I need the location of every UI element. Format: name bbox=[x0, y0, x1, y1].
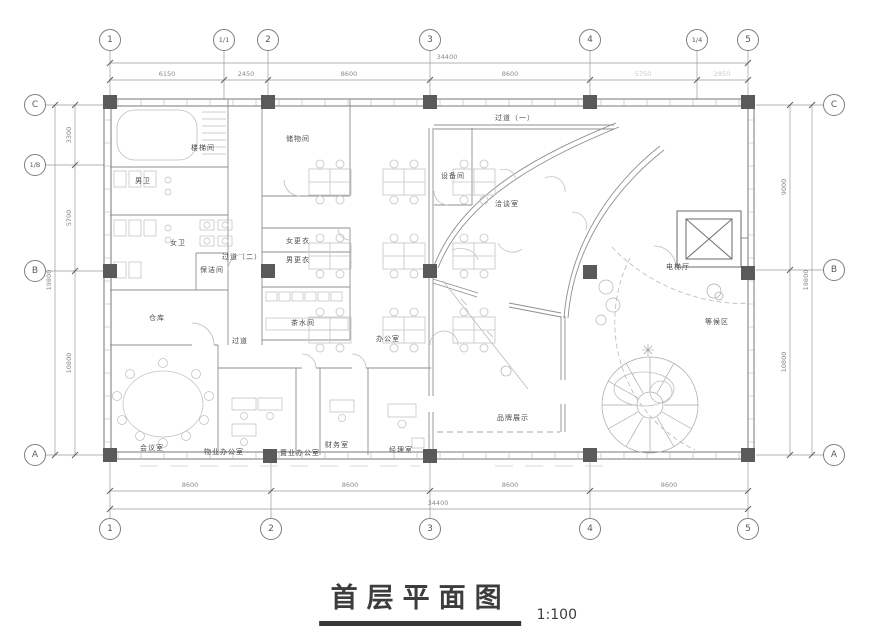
room-label-negotiation: 洽谈室 bbox=[495, 199, 519, 209]
grid-bubble-right-b: B bbox=[823, 259, 845, 281]
room-label-sales-office: 置业办公室 bbox=[280, 448, 320, 458]
plant-symbol bbox=[707, 284, 723, 300]
room-label-elevator-hall: 电梯厅 bbox=[666, 262, 690, 272]
room-label-corridor1: 过道（一） bbox=[495, 113, 535, 123]
floor-plan-drawing bbox=[0, 0, 875, 644]
leader-line bbox=[443, 281, 528, 389]
room-label-meeting: 会议室 bbox=[140, 443, 164, 453]
star-symbol bbox=[642, 344, 654, 356]
title-block: 首层平面图 1:100 bbox=[319, 576, 577, 626]
grid-bubble-bottom-2: 2 bbox=[260, 518, 282, 540]
dim-top-seg-6: 2850 bbox=[714, 70, 731, 78]
room-label-cleaning: 保洁间 bbox=[200, 265, 224, 275]
open-office-workstations bbox=[309, 160, 495, 352]
grid-bubble-bottom-5: 5 bbox=[737, 518, 759, 540]
grid-bubble-top-2: 2 bbox=[257, 29, 279, 51]
dimension-ticks bbox=[52, 60, 815, 512]
room-label-warehouse: 仓库 bbox=[149, 313, 165, 323]
dim-top-seg-1: 6150 bbox=[159, 70, 176, 78]
window-mullions bbox=[104, 99, 755, 459]
room-label-storage: 储物间 bbox=[286, 134, 310, 144]
dim-bottom-overall: 34400 bbox=[428, 499, 449, 507]
dashed-curves bbox=[612, 247, 748, 450]
room-label-pantry: 茶水间 bbox=[291, 318, 315, 328]
grid-bubble-left-c: C bbox=[24, 94, 46, 116]
room-label-waiting: 等候区 bbox=[705, 317, 729, 327]
dim-top-seg-4: 8600 bbox=[502, 70, 519, 78]
dim-right-seg-2: 10800 bbox=[780, 352, 788, 373]
dim-top-overall: 34400 bbox=[437, 53, 458, 61]
dim-left-seg-2: 5700 bbox=[65, 210, 73, 227]
floor-plan-sheet: 1 1/1 2 3 4 1/4 5 1 2 3 4 5 C 1/B B A C … bbox=[0, 0, 875, 644]
room-label-men-change: 男更衣 bbox=[286, 255, 310, 265]
grid-bubble-right-c: C bbox=[823, 94, 845, 116]
grid-bubble-top-3: 3 bbox=[419, 29, 441, 51]
room-label-stair: 楼梯间 bbox=[191, 143, 215, 153]
grid-bubble-bottom-3: 3 bbox=[419, 518, 441, 540]
grid-bubble-left-b: B bbox=[24, 260, 46, 282]
reception-desk bbox=[614, 372, 674, 406]
elevator-shaft bbox=[677, 211, 741, 267]
dim-left-seg-3: 10800 bbox=[65, 353, 73, 374]
dim-left-seg-1: 3300 bbox=[65, 127, 73, 144]
drawing-scale: 1:100 bbox=[537, 607, 577, 626]
dim-right-overall: 19800 bbox=[802, 270, 810, 291]
grid-bubble-top-5: 5 bbox=[737, 29, 759, 51]
dim-top-seg-2: 2450 bbox=[238, 70, 255, 78]
grid-bubble-top-1-1: 1/1 bbox=[213, 29, 235, 51]
grid-bubble-top-1: 1 bbox=[99, 29, 121, 51]
dim-right-seg-1: 9000 bbox=[780, 179, 788, 196]
dim-bottom-seg-1: 8600 bbox=[182, 481, 199, 489]
wc-fixtures bbox=[114, 171, 232, 278]
dim-bottom-seg-2: 8600 bbox=[342, 481, 359, 489]
grid-bubble-left-a: A bbox=[24, 444, 46, 466]
room-label-finance: 财务室 bbox=[325, 440, 349, 450]
grid-bubble-right-a: A bbox=[823, 444, 845, 466]
room-label-mens-wc: 男卫 bbox=[135, 176, 151, 186]
grid-bubble-bottom-4: 4 bbox=[579, 518, 601, 540]
grid-bubble-top-1-4: 1/4 bbox=[686, 29, 708, 51]
dim-left-overall: 19800 bbox=[45, 270, 53, 291]
grid-bubble-top-4: 4 bbox=[579, 29, 601, 51]
dim-top-seg-5: 5750 bbox=[635, 70, 652, 78]
dim-top-seg-3: 8600 bbox=[341, 70, 358, 78]
drawing-title: 首层平面图 bbox=[319, 576, 521, 626]
round-tables bbox=[596, 280, 620, 325]
room-label-womens-wc: 女卫 bbox=[170, 238, 186, 248]
dim-bottom-seg-3: 8600 bbox=[502, 481, 519, 489]
room-label-equipment: 设备间 bbox=[441, 171, 465, 181]
spiral-stair bbox=[602, 357, 698, 453]
room-label-manager: 经理室 bbox=[389, 445, 413, 455]
meeting-table bbox=[113, 359, 214, 448]
grid-bubble-bottom-1: 1 bbox=[99, 518, 121, 540]
room-label-brand-display: 品牌展示 bbox=[497, 413, 529, 423]
room-label-office: 办公室 bbox=[376, 334, 400, 344]
grid-bubble-left-1-b: 1/B bbox=[24, 154, 46, 176]
room-label-property-office: 物业办公室 bbox=[204, 447, 244, 457]
room-label-women-change: 女更衣 bbox=[286, 236, 310, 246]
dim-bottom-seg-4: 8600 bbox=[661, 481, 678, 489]
room-label-corridor2: 过道（二） bbox=[222, 252, 262, 262]
room-label-aisle: 过道 bbox=[232, 336, 248, 346]
